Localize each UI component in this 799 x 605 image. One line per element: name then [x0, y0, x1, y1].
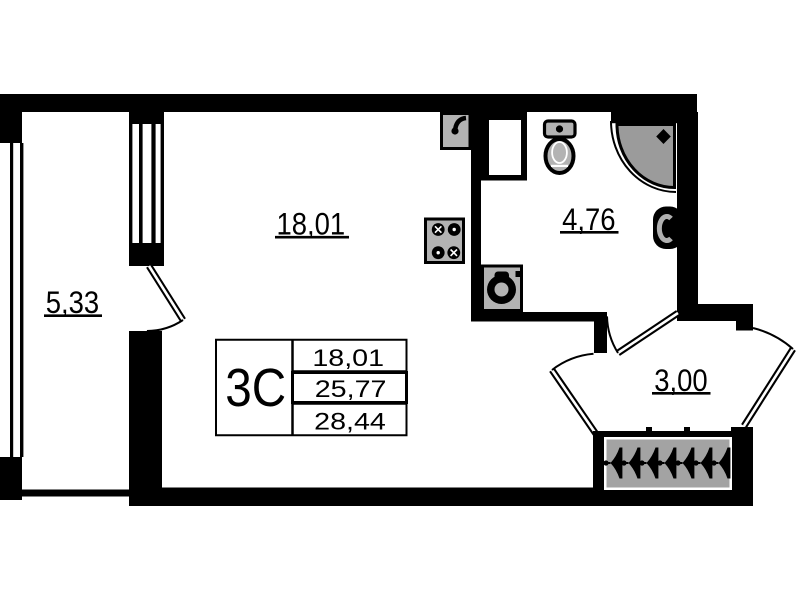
- svg-text:25,77: 25,77: [315, 375, 387, 402]
- svg-text:3С: 3С: [225, 357, 286, 417]
- svg-text:28,44: 28,44: [314, 408, 386, 435]
- svg-text:18,01: 18,01: [312, 344, 384, 371]
